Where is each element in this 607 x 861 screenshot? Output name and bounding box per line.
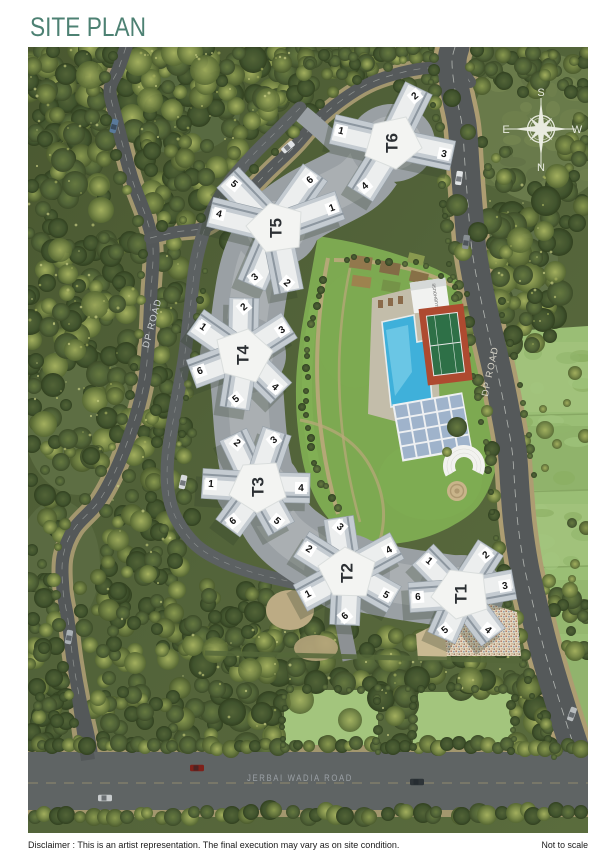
svg-text:T2: T2 xyxy=(338,563,357,583)
svg-text:SITE PLAN: SITE PLAN xyxy=(30,12,146,42)
svg-text:E: E xyxy=(502,124,509,136)
svg-text:N: N xyxy=(537,162,545,174)
svg-text:T3: T3 xyxy=(249,477,268,497)
svg-text:JERBAI WADIA ROAD: JERBAI WADIA ROAD xyxy=(247,773,353,784)
svg-text:T5: T5 xyxy=(267,218,286,238)
svg-text:T4: T4 xyxy=(234,345,253,365)
svg-text:W: W xyxy=(572,124,583,136)
svg-text:Disclaimer : This is an artist: Disclaimer : This is an artist represent… xyxy=(28,840,399,850)
svg-text:4: 4 xyxy=(298,483,304,494)
svg-text:S: S xyxy=(537,87,544,99)
svg-text:Not to scale: Not to scale xyxy=(542,840,589,850)
svg-text:T6: T6 xyxy=(383,133,402,153)
svg-text:T1: T1 xyxy=(452,584,471,604)
